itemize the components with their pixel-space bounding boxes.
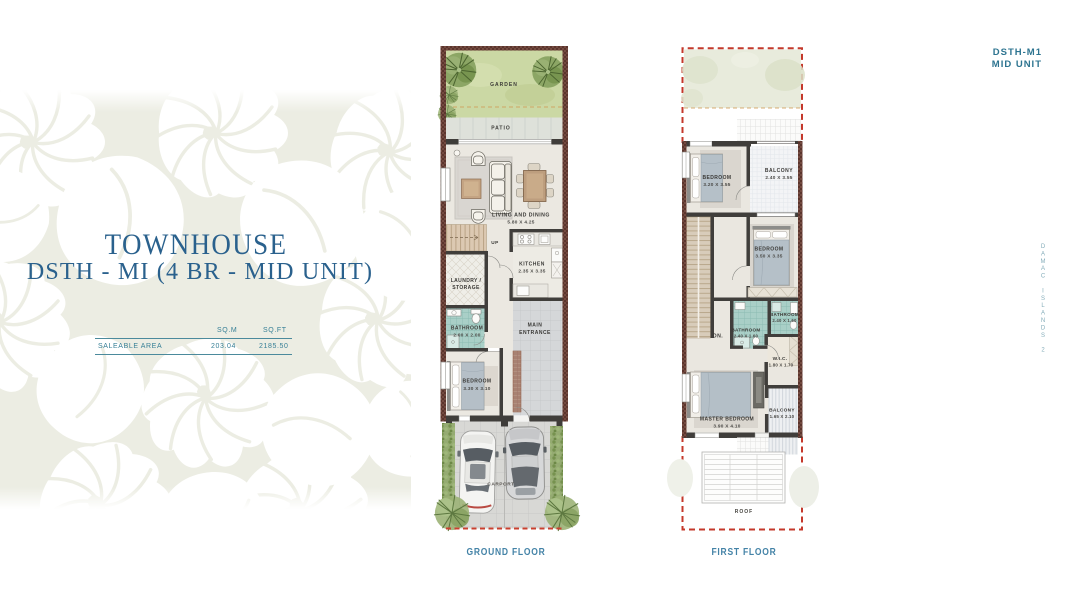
svg-text:LAUNDRY /: LAUNDRY / [451, 278, 482, 284]
svg-text:2.40 X 3.55: 2.40 X 3.55 [765, 175, 792, 180]
svg-text:2.35 X 3.35: 2.35 X 3.35 [518, 269, 545, 274]
svg-text:ROOF: ROOF [735, 509, 753, 515]
svg-text:BEDROOM: BEDROOM [703, 175, 732, 181]
svg-text:ENTRANCE: ENTRANCE [519, 330, 551, 336]
svg-text:3.50 X 3.35: 3.50 X 3.35 [755, 254, 782, 259]
svg-text:5.80 X 4.25: 5.80 X 4.25 [507, 220, 534, 225]
svg-text:BEDROOM: BEDROOM [463, 379, 492, 385]
svg-text:2.40 X 1.60: 2.40 X 1.60 [734, 334, 759, 339]
svg-text:3.90 X 4.10: 3.90 X 4.10 [713, 424, 740, 429]
svg-text:BALCONY: BALCONY [765, 168, 793, 174]
svg-text:BALCONY: BALCONY [769, 408, 795, 414]
svg-text:BATHROOM: BATHROOM [451, 326, 483, 332]
svg-text:DN.: DN. [713, 334, 723, 340]
svg-text:KITCHEN: KITCHEN [519, 262, 545, 268]
svg-text:3.30 X 3.10: 3.30 X 3.10 [463, 386, 490, 391]
svg-text:BATHROOM: BATHROOM [731, 328, 760, 333]
svg-text:2.40 X 1.60: 2.40 X 1.60 [772, 318, 797, 323]
svg-text:STORAGE: STORAGE [452, 285, 480, 291]
svg-text:PATIO: PATIO [491, 126, 511, 132]
svg-text:BEDROOM: BEDROOM [755, 247, 784, 253]
svg-text:W.I.C.: W.I.C. [773, 356, 788, 362]
svg-text:1.65 X 2.10: 1.65 X 2.10 [770, 414, 795, 419]
svg-text:2.00 X 2.00: 2.00 X 2.00 [453, 333, 480, 338]
svg-text:1.80 X 1.70: 1.80 X 1.70 [769, 363, 794, 368]
svg-text:LIVING AND DINING: LIVING AND DINING [492, 213, 550, 219]
svg-text:GARDEN: GARDEN [490, 82, 518, 88]
svg-text:BATHROOM: BATHROOM [770, 312, 799, 317]
svg-text:MAIN: MAIN [528, 323, 543, 329]
svg-text:3.20 X 3.55: 3.20 X 3.55 [703, 182, 730, 187]
svg-text:CARPORT: CARPORT [487, 482, 514, 488]
svg-text:MASTER BEDROOM: MASTER BEDROOM [700, 417, 754, 423]
svg-text:UP: UP [491, 240, 499, 245]
